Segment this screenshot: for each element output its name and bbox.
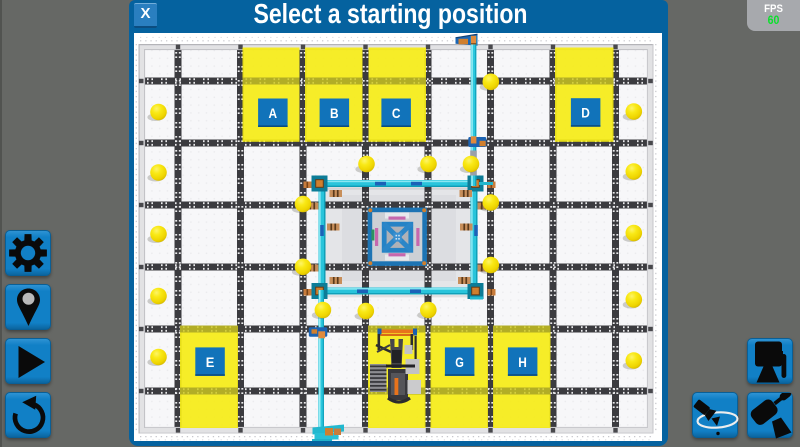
svg-text:A: A <box>269 105 278 121</box>
svg-text:E: E <box>206 354 215 370</box>
svg-text:G: G <box>455 354 464 370</box>
svg-text:D: D <box>581 105 590 121</box>
svg-text:C: C <box>392 105 401 121</box>
svg-text:H: H <box>518 354 527 370</box>
svg-text:B: B <box>330 105 339 121</box>
